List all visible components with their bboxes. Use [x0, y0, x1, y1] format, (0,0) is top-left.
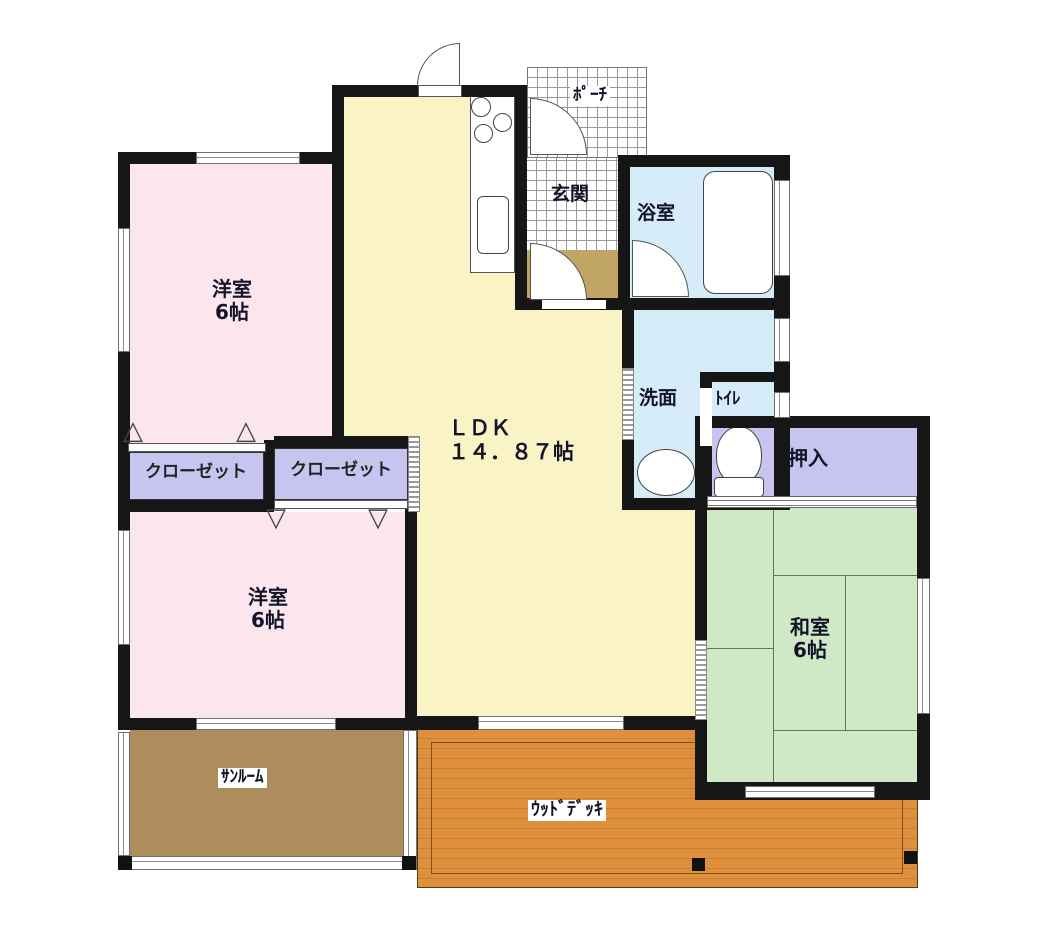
folding-door-mark: ▽ — [266, 505, 286, 531]
toilet-tank — [714, 477, 764, 497]
folding-door-mark: △ — [123, 418, 143, 444]
bathtub — [703, 171, 773, 294]
room-label-entrance: 玄関 — [551, 184, 589, 206]
door-sliding-glass[interactable] — [478, 716, 624, 730]
room-name: 洋室 — [248, 585, 288, 609]
room-name: 和室 — [790, 615, 830, 639]
room-size: １４．８７帖 — [448, 440, 574, 464]
wall — [515, 85, 527, 310]
wall — [332, 85, 344, 436]
washbasin — [637, 449, 695, 496]
room-size: 6帖 — [251, 608, 285, 632]
floor-plan: △ △ ▽ ▽ 洋室 6帖 洋室 6帖 クローゼット クローゼット ＬＤＫ １４… — [0, 0, 1040, 944]
window — [917, 578, 930, 714]
sunroom-window-right — [403, 730, 417, 858]
room-label-sunroom: ｻﾝﾙｰﾑ — [218, 768, 267, 788]
sunroom-corner-post — [402, 856, 416, 870]
doorway-opening — [542, 300, 606, 309]
kitchen-sink — [477, 196, 509, 254]
folding-door-mark: ▽ — [368, 505, 388, 531]
tatami-line — [773, 730, 917, 731]
window — [774, 392, 790, 418]
door-sliding-fusuma[interactable] — [695, 640, 707, 720]
room-label-bedroom-bottom: 洋室 6帖 — [198, 586, 338, 632]
wall — [405, 505, 417, 716]
window-sliding — [745, 786, 875, 798]
door-swing-ldk-back-door[interactable] — [417, 43, 460, 86]
kitchen-stove-burner — [471, 97, 491, 117]
sunroom-window-left — [118, 732, 130, 856]
room-name: 洋室 — [212, 277, 252, 301]
window — [196, 152, 300, 164]
door-opening — [700, 388, 712, 446]
deck-post — [904, 851, 917, 864]
room-name: ＬＤＫ — [448, 416, 511, 440]
deck-post — [692, 858, 705, 871]
room-label-closet-left: クローゼット — [128, 463, 264, 483]
window-sliding — [196, 718, 336, 730]
room-label-porch: ﾎﾟｰﾁ — [570, 86, 610, 106]
door-leaf — [418, 85, 462, 97]
room-label-wood-deck: ｳｯﾄﾞﾃﾞｯｷ — [528, 800, 606, 821]
room-label-bedroom-top: 洋室 6帖 — [162, 278, 302, 324]
kitchen-stove-burner — [493, 113, 512, 132]
room-sunroom-fill — [130, 730, 403, 858]
room-size: 6帖 — [793, 638, 827, 662]
wall — [618, 155, 630, 310]
window — [118, 228, 130, 352]
oshiire-sliding-doors[interactable] — [707, 496, 917, 508]
wall — [695, 416, 930, 428]
window — [774, 318, 790, 362]
room-label-washroom: 洗面 — [639, 388, 677, 410]
tatami-line — [707, 648, 773, 649]
wall — [695, 416, 707, 800]
window — [118, 530, 130, 645]
wall-hatched — [408, 436, 420, 512]
sunroom-corner-post — [118, 856, 132, 870]
kitchen-stove-burner — [474, 124, 493, 143]
sunroom-window-bottom — [118, 856, 417, 870]
room-label-toilet: ﾄｲﾚ — [715, 390, 741, 410]
wall — [618, 155, 790, 167]
toilet-bowl — [716, 426, 762, 484]
wall — [274, 436, 420, 448]
room-label-ldk: ＬＤＫ １４．８７帖 — [448, 416, 628, 464]
room-label-closet-right: クローゼット — [274, 461, 408, 481]
window — [774, 180, 790, 276]
room-label-bathroom: 浴室 — [637, 203, 675, 225]
room-label-oshiire: 押入 — [788, 447, 828, 470]
wall — [118, 500, 274, 512]
folding-door-mark: △ — [236, 418, 256, 444]
room-size: 6帖 — [215, 300, 249, 324]
room-label-japanese-room: 和室 6帖 — [768, 616, 852, 662]
